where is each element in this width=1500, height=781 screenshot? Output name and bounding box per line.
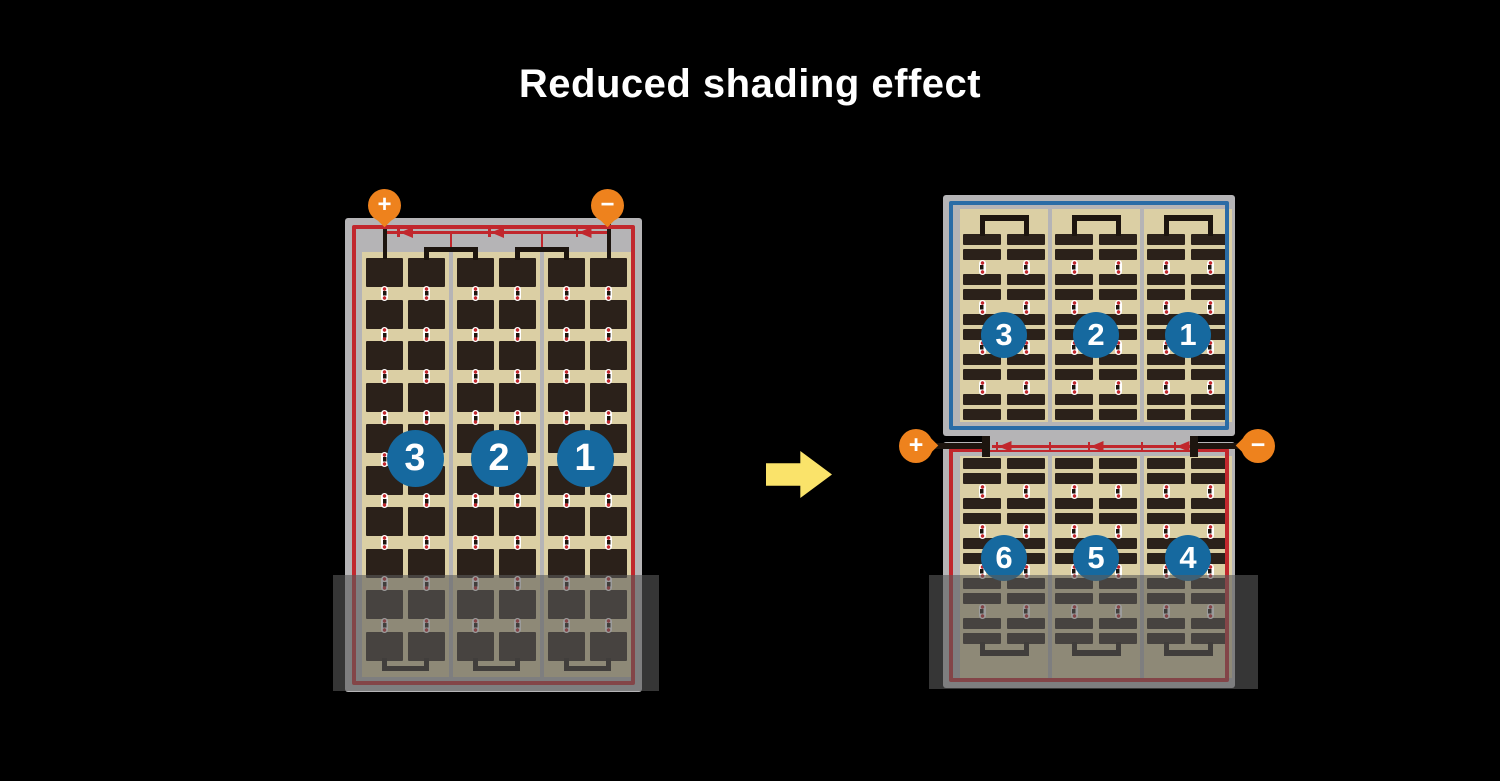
string-label-circle: 2 <box>1073 312 1119 358</box>
right-arrow-icon <box>766 451 832 498</box>
string-label-circle: 3 <box>981 312 1027 358</box>
shading-overlay-left <box>333 575 659 691</box>
string-label-circle: 2 <box>471 430 528 487</box>
string-label-circle: 1 <box>557 430 614 487</box>
minus-icon: − <box>1251 433 1266 458</box>
positive-terminal: + <box>368 189 401 222</box>
positive-terminal: + <box>899 429 933 463</box>
negative-terminal: − <box>1241 429 1275 463</box>
plus-icon: + <box>909 433 924 458</box>
page-title: Reduced shading effect <box>0 62 1500 107</box>
plus-icon: + <box>377 193 391 217</box>
negative-terminal: − <box>591 189 624 222</box>
minus-icon: − <box>600 193 614 217</box>
junction-wiring <box>0 0 1500 781</box>
shading-overlay-right <box>929 575 1258 689</box>
diagram: Reduced shading effect + − 3 2 1 + − 3 2… <box>0 0 1500 781</box>
string-label-circle: 1 <box>1165 312 1211 358</box>
string-label-circle: 3 <box>387 430 444 487</box>
